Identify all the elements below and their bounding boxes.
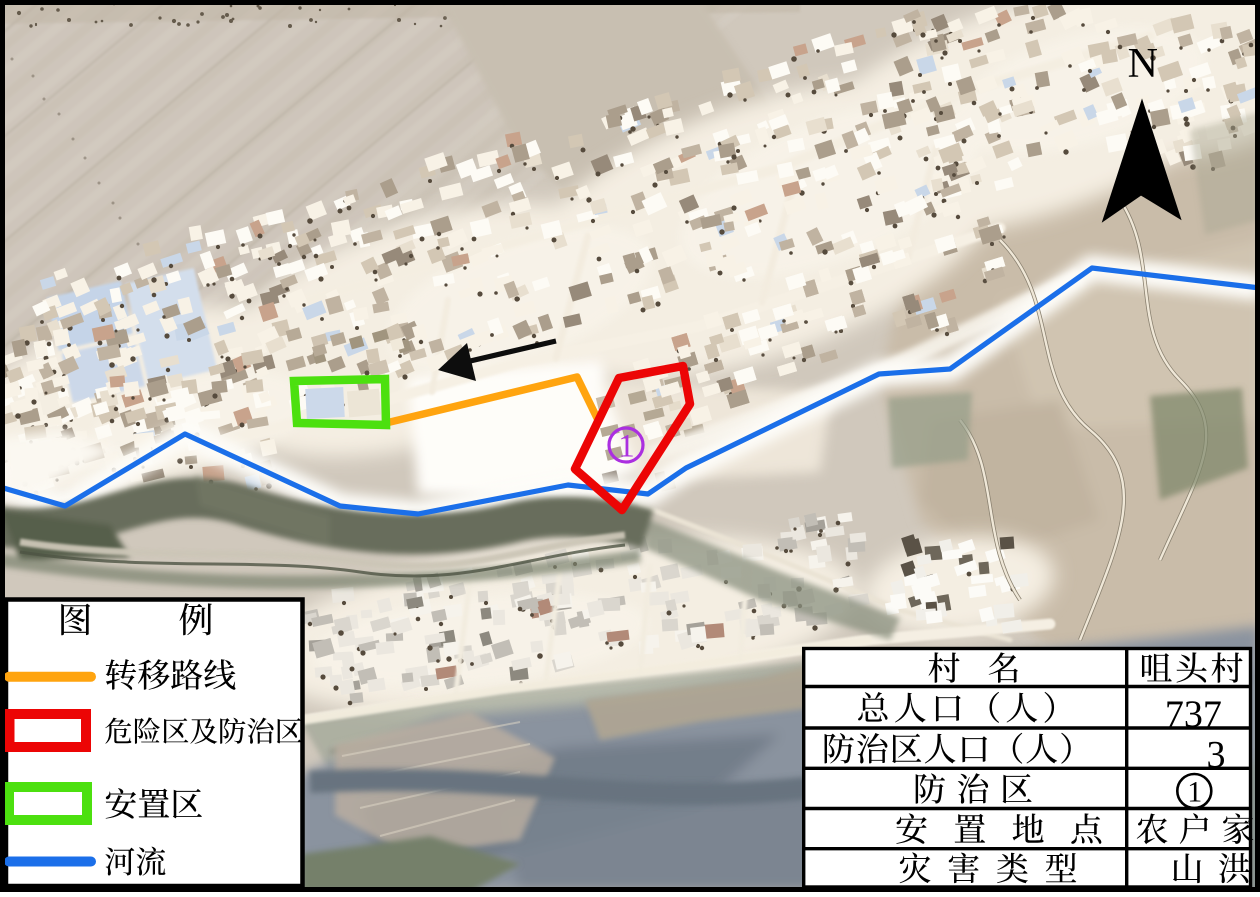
svg-text:3: 3 <box>1207 734 1226 776</box>
svg-text:737: 737 <box>1165 694 1222 736</box>
svg-text:1: 1 <box>618 429 635 465</box>
svg-text:N: N <box>1128 41 1158 87</box>
svg-text:1: 1 <box>1187 776 1202 809</box>
